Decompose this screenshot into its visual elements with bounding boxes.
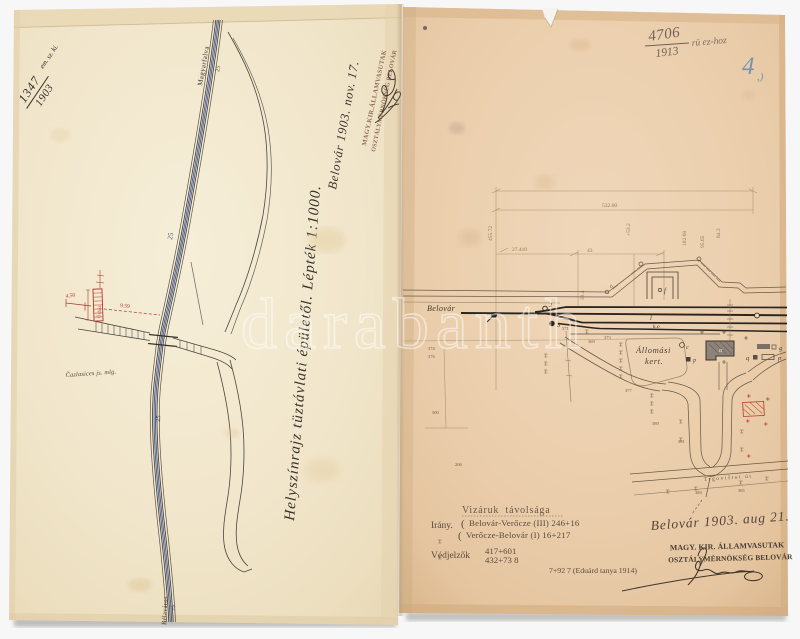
svg-text:+53.2: +53.2 — [626, 223, 632, 236]
svg-text:27.410: 27.410 — [512, 247, 527, 253]
svg-text:84.3: 84.3 — [716, 228, 722, 238]
svg-text:l: l — [650, 315, 652, 322]
svg-text:385: 385 — [738, 488, 746, 493]
svg-text:432+73 8: 432+73 8 — [485, 555, 519, 565]
svg-text:381: 381 — [678, 439, 685, 444]
svg-text:,): ,) — [757, 71, 764, 83]
svg-text:455.72: 455.72 — [488, 226, 494, 241]
svg-text:Vizáruk távolsága: Vizáruk távolsága — [462, 505, 550, 516]
svg-text:Verőcze-Belovár (I) 16+217: Verőcze-Belovár (I) 16+217 — [466, 530, 571, 540]
svg-text:373: 373 — [604, 335, 612, 340]
svg-text:95.65: 95.65 — [700, 235, 706, 248]
svg-text:Állomási: Állomási — [635, 345, 671, 355]
svg-text:25: 25 — [155, 415, 162, 422]
svg-text:102.68: 102.68 — [682, 231, 688, 246]
svg-text:532.60: 532.60 — [602, 203, 617, 209]
svg-text:k.o: k.o — [653, 324, 660, 330]
svg-text:25: 25 — [215, 65, 222, 72]
svg-text:darabanth: darabanth — [241, 284, 588, 364]
svg-text:Irány.: Irány. — [431, 521, 453, 531]
svg-text:(: ( — [458, 530, 462, 542]
svg-text:p: p — [692, 358, 696, 364]
svg-text:384: 384 — [695, 490, 703, 495]
svg-text:b.: b. — [610, 284, 614, 290]
svg-text:369: 369 — [588, 339, 596, 344]
svg-text:(: ( — [461, 518, 465, 530]
svg-text:9.59: 9.59 — [120, 303, 130, 310]
svg-text:206: 206 — [455, 462, 463, 467]
svg-text:380: 380 — [652, 421, 660, 426]
svg-text:7+92 7 (Eduárd tanya 1914): 7+92 7 (Eduárd tanya 1914) — [549, 566, 637, 575]
svg-text:Védjelzők: Védjelzők — [431, 551, 470, 561]
svg-text:4: 4 — [742, 53, 755, 80]
svg-text:25: 25 — [171, 605, 177, 611]
svg-text:c: c — [686, 345, 689, 351]
svg-text:377: 377 — [625, 388, 633, 393]
svg-text:43: 43 — [587, 248, 593, 254]
svg-text:kert.: kert. — [645, 356, 663, 366]
svg-text:Belovár-Verőcze (III) 246+16: Belovár-Verőcze (III) 246+16 — [469, 518, 580, 528]
svg-text:Őrház: Őrház — [97, 305, 102, 318]
svg-text:500: 500 — [432, 410, 440, 415]
svg-text:a: a — [719, 347, 722, 354]
